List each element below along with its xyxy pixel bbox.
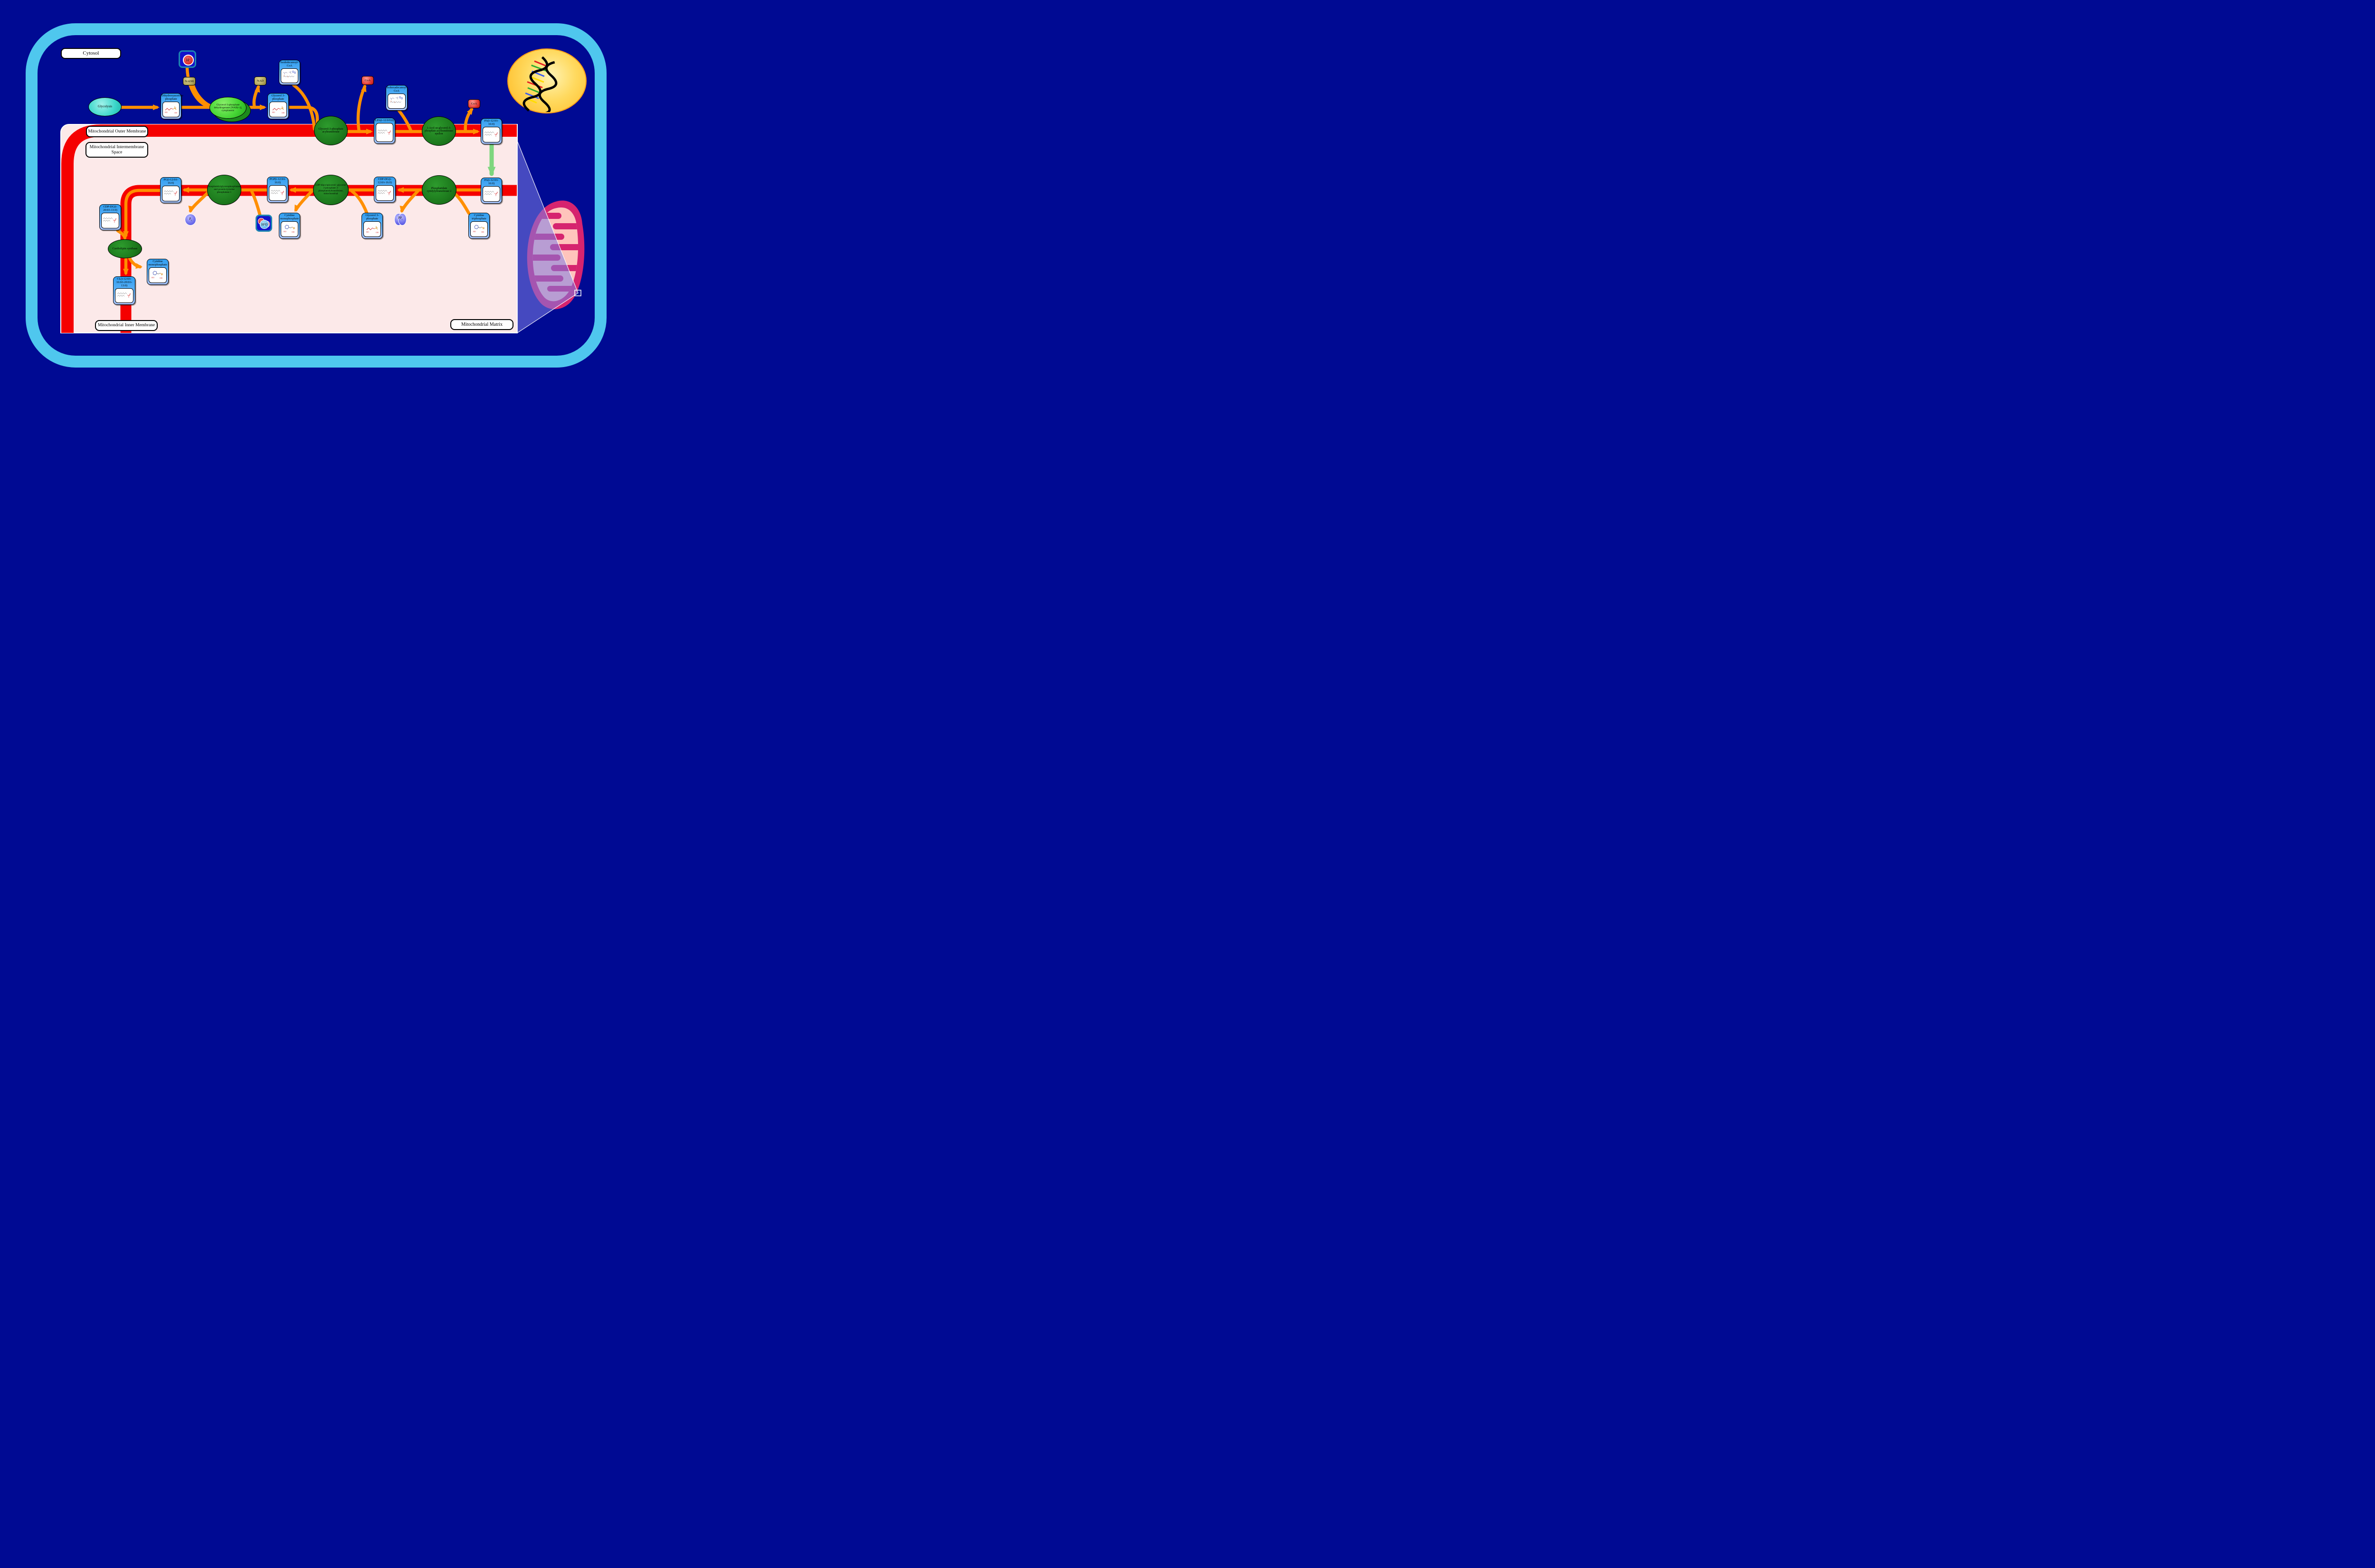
compound-structure-image [162,186,180,201]
enzyme-label: CDP-diacylglycerol--glycerol-3-phosphate… [314,184,347,195]
pathway-diagram: CytosolMitochondrial Outer MembraneMitoc… [0,0,641,392]
enzyme-node-cardiolipin-synthase[interactable]: Cardiolipin synthase [108,239,142,258]
compound-box-isohexadecanoyl-coa[interactable]: Isohexadecanoyl-CoA [386,85,408,111]
svg-text:HO: HO [152,276,154,279]
compound-box-cytidine-triphosphate[interactable]: Cytidine triphosphateHOOH [468,213,490,239]
svg-text:OH: OH [174,112,177,114]
compound-label: PG(i-12:0/i-16:0) [161,178,181,186]
region-label-text: Mitochondrial Matrix [461,322,503,327]
compound-structure-image [376,123,393,142]
compound-label: CL(i-12:0/i-16:0/i-20:0/i-13:0) [114,277,135,288]
compound-box-pa-i-12-0-i-16-0-inner[interactable]: PA(i-12:0/i-16:0) [481,178,502,204]
compound-box-glycerol-3-phosphate-cytosol[interactable]: Glycerol 3-phosphateHOOH [267,93,289,119]
enzyme-label: Cardiolipin synthase [113,247,138,251]
compound-label: Cytidine monophosphate [147,259,168,267]
compound-label: CDP-DG(i-20:0/i-13:0) [100,205,121,213]
compound-label: Cytidine triphosphate [469,213,489,221]
compound-structure-image [269,185,286,201]
svg-text:OH: OH [282,112,285,114]
svg-text:HO: HO [366,231,369,233]
svg-text:HO: HO [284,230,286,233]
compound-box-pg-i-12-0-i-16-0[interactable]: PG(i-12:0/i-16:0) [160,177,181,203]
enzyme-label: Glycerol-3-phosphate acyltransferase [315,128,346,134]
compound-label: PA(i-12:0/i-16:0) [481,178,502,186]
enzyme-node-1-acyl-sn-glycerol-3-phosphate-acyltransferase-epsilon[interactable]: 1-Acyl-sn-glycerol-3-phosphate acyltrans… [422,116,456,146]
metabolite-badge-nad[interactable]: NAD [254,76,266,85]
metabolite-badge-coa-top[interactable]: CoA [361,76,374,85]
compound-structure-image [483,186,500,202]
enzyme-node-glycerol-3-phosphate-acyltransferase[interactable]: Glycerol-3-phosphate acyltransferase [314,116,348,145]
enzyme-node-cdp-diacylglycerol-glycerol-3-phosphate-3-phosphatidyltransferase[interactable]: CDP-diacylglycerol--glycerol-3-phosphate… [313,175,349,205]
region-label-mitochondrial-matrix: Mitochondrial Matrix [450,319,513,330]
mitochondrion-illustration [522,196,598,317]
compound-box-glycerol-3-phosphate-matrix[interactable]: Glycerol 3-phosphateHOOH [361,213,383,239]
badge-text: CoA [365,79,370,82]
compound-structure-image [388,94,406,109]
enzyme-label: Phosphatidylglycerophosphatase and prote… [208,186,241,194]
enzyme-node-phosphatidylglycerophosphatase-and-protein-tyrosine-phosphatase-1[interactable]: Phosphatidylglycerophosphatase and prote… [207,175,241,205]
metabolite-badge-nadh[interactable]: NADH [183,77,196,85]
compound-box-lpa-i-12-0-0-0[interactable]: LPA(i-12:0/0:0) [374,118,395,144]
region-label-text: Mitochondrial Intermembrane Space [86,145,147,155]
compound-label: Isohexadecanoyl-CoA [386,85,407,94]
compound-structure-image [281,68,298,83]
compound-label: Dihydroxyacetone phosphate [161,94,181,102]
region-label-text: Mitochondrial Outer Membrane [88,129,146,134]
molecule-icon-hydron[interactable]: H+ [179,50,196,68]
compound-label: LPA(i-12:0/0:0) [374,118,395,123]
compound-structure-image: HOOH [470,221,488,237]
compound-structure-image: HOOH [281,221,298,237]
region-label-cytosol: Cytosol [61,48,121,59]
water-molecule-label: H2O [260,220,268,229]
pathway-node-glycolysis[interactable]: Glycolysis [88,97,122,116]
compound-box-cl-i-12-0-i-16-0-i-20-0-i-13-0[interactable]: CL(i-12:0/i-16:0/i-20:0/i-13:0) [113,276,135,305]
svg-text:OH: OH [160,277,162,279]
svg-text:OH: OH [376,231,379,234]
svg-text:HO: HO [165,111,168,113]
compound-label: PA(i-12:0/i-16:0) [481,119,502,127]
compound-label: Glycerol 3-phosphate [268,94,288,102]
region-label-mitochondrial-intermembrane-space: Mitochondrial Intermembrane Space [85,142,148,158]
compound-box-dihydroxyacetone-phosphate[interactable]: Dihydroxyacetone phosphateHOOH [161,93,181,119]
svg-text:HO: HO [272,111,275,113]
badge-text: NAD [257,79,264,83]
compound-structure-image: HOOH [363,221,381,237]
compound-box-cdp-dg-i-20-0-i-13-0[interactable]: CDP-DG(i-20:0/i-13:0) [99,204,121,230]
compound-structure-image: HOOH [162,102,180,117]
compound-label: Isododecanoyl-CoA [279,60,300,68]
molecule-icon-water[interactable]: H2O [256,215,272,232]
compound-structure-image [483,127,500,142]
compound-structure-image [115,288,133,303]
enzyme-label: Phosphatidate cytidylyltransferase 2 [423,187,455,193]
badge-text: CoA [471,102,477,105]
svg-text:HO: HO [473,230,476,233]
badge-text: PPi [399,217,403,221]
enzyme-label: 1-Acyl-sn-glycerol-3-phosphate acyltrans… [423,127,455,136]
badge-text: Pi [189,217,191,222]
compound-box-pgp-i-12-0-i-16-0[interactable]: PGP(i-12:0/i-16:0) [267,177,288,203]
compound-structure-image: HOOH [269,102,287,117]
region-label-text: Cytosol [83,50,99,56]
compound-structure-image: HOOH [149,267,167,283]
metabolite-badge-ppi[interactable]: PPi [394,213,407,225]
svg-text:OH: OH [481,231,484,233]
compound-box-isododecanoyl-coa[interactable]: Isododecanoyl-CoA [279,60,300,85]
compound-structure-image [101,213,119,228]
region-label-mitochondrial-outer-membrane: Mitochondrial Outer Membrane [86,126,148,137]
region-label-text: Mitochondrial Inner Membrane [98,323,155,328]
metabolite-badge-coa-right[interactable]: CoA [468,99,480,108]
compound-box-cdp-dg-i-12-0-i-16-0[interactable]: CDP-DG(i-12:0/i-16:0) [374,177,396,203]
compound-box-cytidine-monophosphate-bottom[interactable]: Cytidine monophosphateHOOH [147,259,169,285]
enzyme-node-phosphatidate-cytidylyltransferase-2[interactable]: Phosphatidate cytidylyltransferase 2 [422,175,456,205]
badge-text: NADH [185,80,194,83]
compound-structure-image [376,185,394,201]
compound-box-cytidine-monophosphate-mid[interactable]: Cytidine monophosphateHOOH [279,213,300,239]
compound-box-pa-i-12-0-i-16-0-outer[interactable]: PA(i-12:0/i-16:0) [481,118,502,144]
pathway-node-label: Glycolysis [98,105,112,109]
region-label-mitochondrial-inner-membrane: Mitochondrial Inner Membrane [95,320,158,331]
enzyme-label: Glycerol-3-phosphate dehydrogenase [NAD(… [211,104,245,112]
hydron-circle: H+ [183,55,194,66]
compound-label: Glycerol 3-phosphate [362,213,382,221]
compound-label: PGP(i-12:0/i-16:0) [267,177,288,185]
compound-label: Cytidine monophosphate [279,213,300,221]
svg-text:OH: OH [292,231,294,233]
enzyme-node-glycerol-3-phosphate-dehydrogenase[interactable]: Glycerol-3-phosphate dehydrogenase [NAD(… [209,97,247,119]
metabolite-badge-pi[interactable]: Pi [185,214,196,226]
compound-label: CDP-DG(i-12:0/i-16:0) [374,177,395,185]
